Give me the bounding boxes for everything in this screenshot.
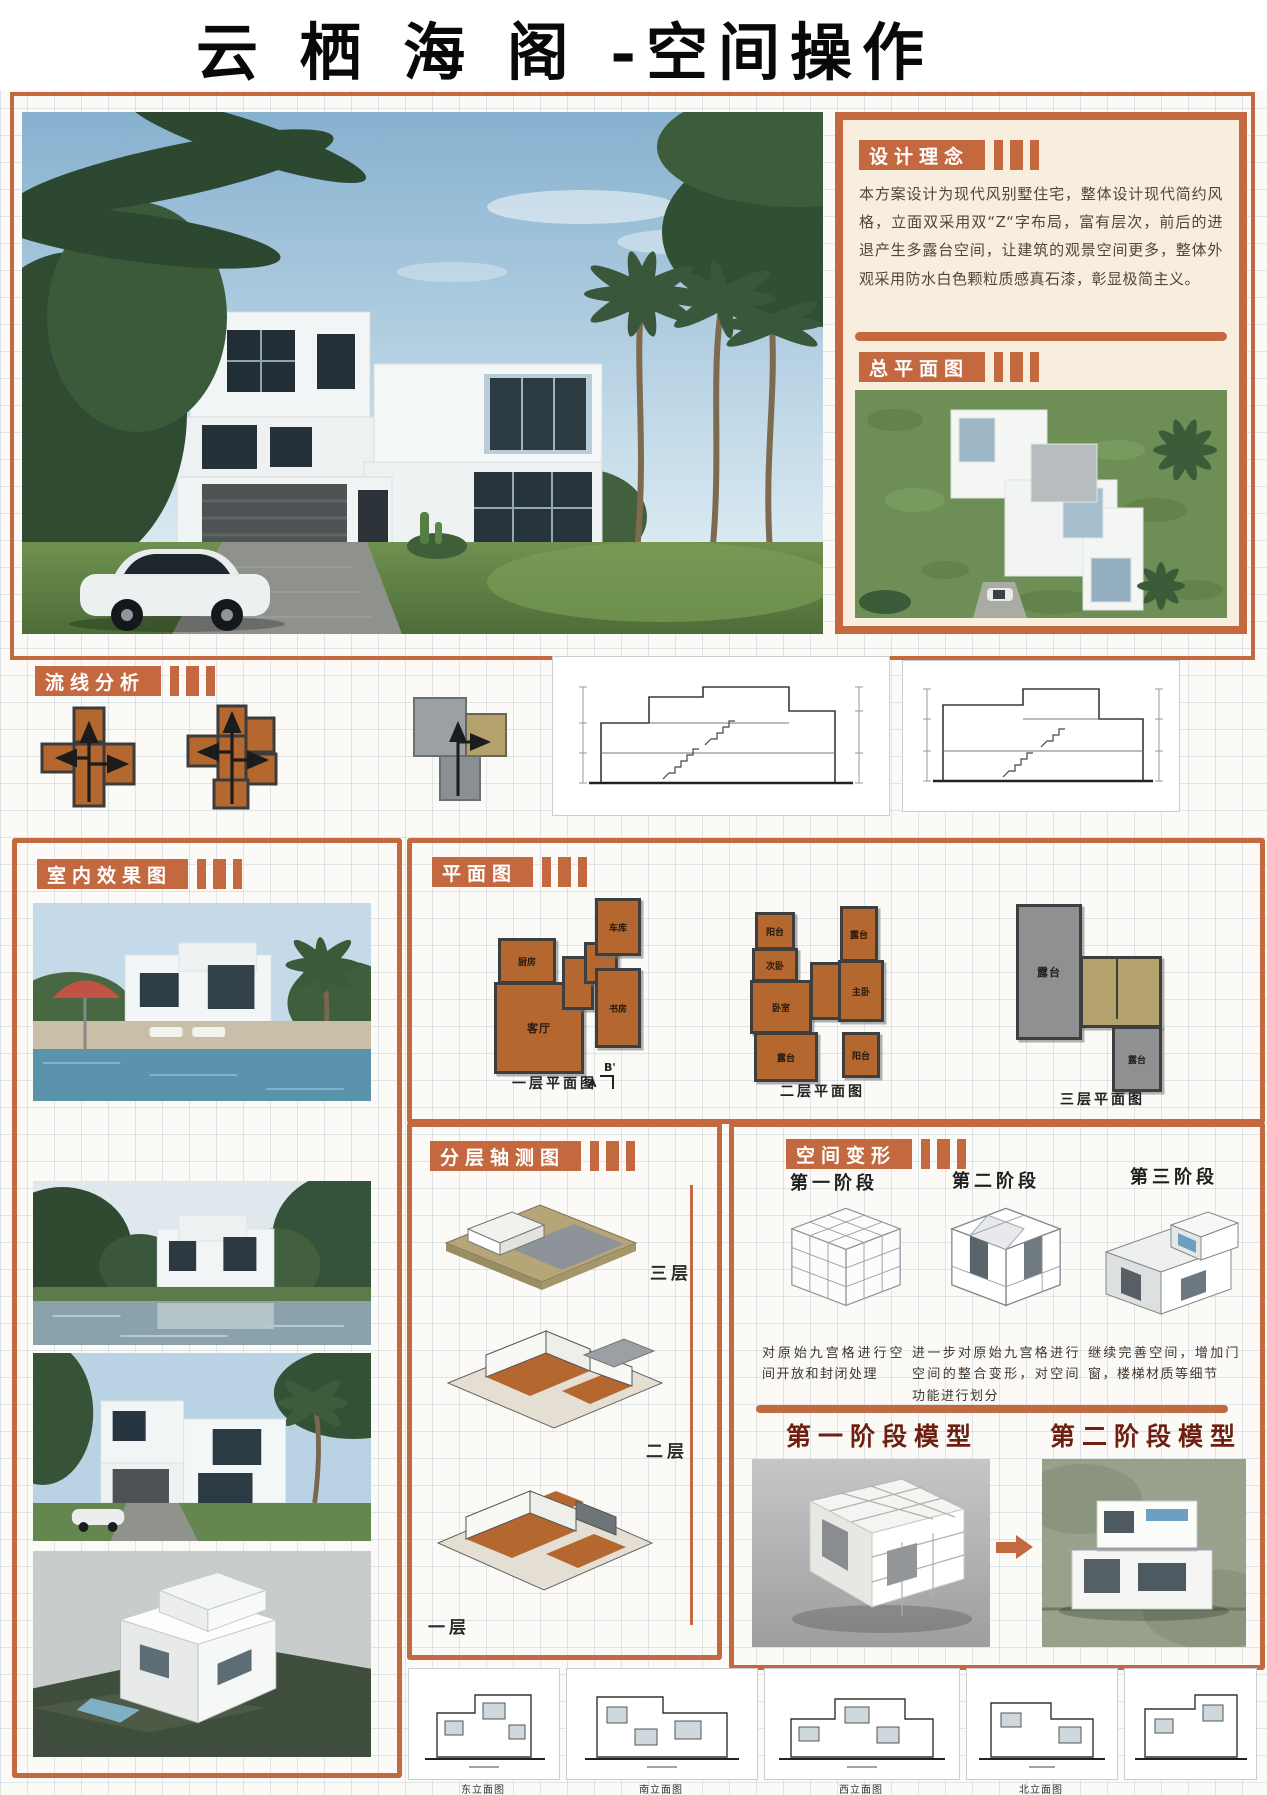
stage3-building <box>1086 1197 1246 1329</box>
stripe <box>1030 140 1039 170</box>
room-terrace-small: 露台 <box>1112 1026 1162 1092</box>
elevation5-linework <box>1125 1669 1256 1779</box>
room-kitchen: 厨房 <box>498 938 556 984</box>
circulation-axon <box>400 688 518 810</box>
exterior-render-front <box>33 1353 371 1541</box>
room-upper-volume <box>1080 956 1162 1028</box>
stage2-model-photo <box>1042 1459 1246 1647</box>
floor2-caption: 二层平面图 <box>780 1081 865 1101</box>
stripe <box>994 140 1003 170</box>
axon-link-line <box>690 1185 693 1625</box>
axon-level2-illustration <box>434 1305 674 1445</box>
axon-level1 <box>426 1459 664 1611</box>
elevation4-caption: 北立面图 <box>966 1781 1116 1795</box>
stripe <box>626 1141 635 1171</box>
elevation3-caption: 西立面图 <box>764 1781 958 1795</box>
circulation-heading: 流线分析 <box>35 666 161 696</box>
stripe <box>590 1141 599 1171</box>
poster-title: 云 栖 海 阁 -空间操作 <box>0 2 1130 92</box>
stage1-model-heading: 第一阶段模型 <box>786 1417 978 1453</box>
section-mark-line <box>600 1075 614 1089</box>
circulation-plan-2 <box>168 700 318 814</box>
stripe <box>1010 140 1023 170</box>
transformation-heading: 空间变形 <box>786 1139 912 1169</box>
room-divider-line <box>1116 959 1118 1019</box>
stage2-model-heading: 第二阶段模型 <box>1050 1417 1242 1453</box>
elevation2-linework <box>567 1669 757 1779</box>
level1-label: 一层 <box>428 1613 470 1638</box>
axon-level1-illustration <box>426 1459 664 1611</box>
header-stripes <box>994 352 1039 382</box>
header-stripes <box>994 140 1039 170</box>
massing-model-illustration <box>33 1551 371 1757</box>
poster-board: 云 栖 海 阁 -空间操作 <box>0 0 1267 1795</box>
stripe <box>578 857 587 887</box>
level3-label: 三层 <box>650 1259 692 1284</box>
floor-plans-section: 平面图 厨房 客厅 车库 书房 一层平面图 B' A 阳台 次卧 卧室 露台 露… <box>407 838 1265 1124</box>
stripe <box>606 1141 619 1171</box>
elevation-drawing-2 <box>566 1668 758 1780</box>
axon-level2 <box>434 1305 674 1445</box>
section-drawing-a <box>552 656 890 816</box>
room-study: 书房 <box>595 968 641 1048</box>
arrow-icon <box>996 1535 1033 1559</box>
panel-divider <box>855 332 1227 341</box>
stripe <box>994 352 1003 382</box>
room-bed2: 次卧 <box>752 948 798 982</box>
stripe <box>206 666 215 696</box>
room-terrace-big: 露台 <box>1016 904 1082 1040</box>
stripe <box>186 666 199 696</box>
room-balcony-b: 阳台 <box>842 1032 880 1078</box>
room-garage: 车库 <box>595 898 641 956</box>
stage3-label: 第三阶段 <box>1130 1163 1218 1189</box>
stripe <box>542 857 551 887</box>
model-divider <box>756 1405 1228 1413</box>
right-panel-inner: 设计理念 本方案设计为现代风别墅住宅，整体设计现代简约风格，立面双采用双“Z“字… <box>843 120 1239 626</box>
elevation1-caption: 东立面图 <box>408 1781 558 1795</box>
site-plan-illustration <box>855 390 1227 618</box>
axonometric-heading: 分层轴测图 <box>430 1141 581 1171</box>
stage2-cube <box>936 1193 1076 1331</box>
elevation-drawing-3 <box>764 1668 960 1780</box>
stage1-cube-diagram <box>776 1193 916 1331</box>
axonometric-header: 分层轴测图 <box>430 1141 635 1171</box>
elevation1-linework <box>409 1669 559 1779</box>
floor-plans-heading: 平面图 <box>432 857 533 887</box>
axonometric-section: 分层轴测图 <box>407 1122 722 1660</box>
render-front-illustration <box>33 1353 371 1541</box>
interior-header: 室内效果图 <box>37 859 242 889</box>
interior-renders-section: 室内效果图 <box>12 838 402 1778</box>
exterior-render-pool <box>33 903 371 1101</box>
room-master: 主卧 <box>838 960 884 1022</box>
level2-label: 二层 <box>646 1437 688 1462</box>
section-a-linework <box>553 657 889 815</box>
site-plan-aerial <box>855 390 1227 618</box>
stage1-cube <box>776 1193 916 1331</box>
render-pool-illustration <box>33 903 371 1101</box>
design-concept-heading: 设计理念 <box>859 140 985 170</box>
stage2-description: 进一步对原始九宫格进行空间的整合变形，对空间功能进行划分 <box>912 1343 1080 1407</box>
elevation-drawing-4 <box>966 1668 1118 1780</box>
stripe <box>233 859 242 889</box>
stripe <box>197 859 206 889</box>
circulation-diagram-1 <box>30 702 160 814</box>
section-b-linework <box>903 661 1179 811</box>
stage3-description: 继续完善空间，增加门窗，楼梯材质等细节 <box>1088 1343 1240 1386</box>
section-drawing-b <box>902 660 1180 812</box>
stage1-model-photo <box>752 1459 990 1647</box>
header-stripes <box>590 1141 635 1171</box>
axon-level3 <box>428 1179 653 1297</box>
render-lake-illustration <box>33 1181 371 1345</box>
design-concept-header: 设计理念 <box>859 140 1039 170</box>
stripe <box>1030 352 1039 382</box>
stripe <box>957 1139 966 1169</box>
massing-model-render <box>33 1551 371 1757</box>
stripe <box>558 857 571 887</box>
header-stripes <box>197 859 242 889</box>
hero-villa-render <box>22 112 823 634</box>
circulation-diagram-2 <box>168 700 318 814</box>
elevation-drawing-1 <box>408 1668 560 1780</box>
floor1-caption: 一层平面图 <box>512 1073 597 1093</box>
stripe <box>1010 352 1023 382</box>
stripe <box>213 859 226 889</box>
hero-villa-illustration <box>22 112 823 634</box>
stage2-cube-diagram <box>936 1193 1076 1331</box>
design-concept-text: 本方案设计为现代风别墅住宅，整体设计现代简约风格，立面双采用双“Z“字布局，富有… <box>859 180 1223 293</box>
transformation-section: 空间变形 第一阶段 第二阶段 第三阶段 <box>729 1122 1265 1670</box>
header-stripes <box>542 857 587 887</box>
elevation-drawing-5 <box>1124 1668 1257 1780</box>
stage1-label: 第一阶段 <box>790 1169 878 1195</box>
stage3-building-diagram <box>1086 1197 1246 1329</box>
stage2-label: 第二阶段 <box>952 1167 1040 1193</box>
room-terrace-a: 露台 <box>754 1032 818 1082</box>
room-terrace-b: 露台 <box>840 906 878 962</box>
floor3-caption: 三层平面图 <box>1060 1089 1145 1109</box>
floor-plans-header: 平面图 <box>432 857 587 887</box>
circulation-diagram-3 <box>400 688 518 810</box>
stripe <box>937 1139 950 1169</box>
section-mark-b: B' <box>604 1061 616 1074</box>
stage1-model-illustration <box>752 1459 990 1647</box>
transformation-header: 空间变形 <box>786 1139 966 1169</box>
stage1-description: 对原始九宫格进行空间开放和封闭处理 <box>762 1343 904 1386</box>
stripe <box>170 666 179 696</box>
stage2-model-illustration <box>1042 1459 1246 1647</box>
site-plan-header: 总平面图 <box>859 352 1039 382</box>
elevation4-linework <box>967 1669 1117 1779</box>
room-bed: 卧室 <box>750 980 812 1034</box>
arrow-shaft <box>996 1542 1016 1553</box>
circulation-plan-1 <box>30 702 160 814</box>
section-mark-a: A <box>588 1077 597 1090</box>
circulation-header: 流线分析 <box>35 666 215 696</box>
arrow-head <box>1016 1535 1033 1559</box>
header-stripes <box>170 666 215 696</box>
elevation3-linework <box>765 1669 959 1779</box>
exterior-render-lake <box>33 1181 371 1345</box>
header-stripes <box>921 1139 966 1169</box>
elevation2-caption: 南立面图 <box>566 1781 756 1795</box>
room-balcony-a: 阳台 <box>755 912 795 950</box>
axon-level3-illustration <box>428 1179 653 1297</box>
site-plan-heading: 总平面图 <box>859 352 985 382</box>
interior-heading: 室内效果图 <box>37 859 188 889</box>
right-panel: 设计理念 本方案设计为现代风别墅住宅，整体设计现代简约风格，立面双采用双“Z“字… <box>835 112 1247 634</box>
stripe <box>921 1139 930 1169</box>
